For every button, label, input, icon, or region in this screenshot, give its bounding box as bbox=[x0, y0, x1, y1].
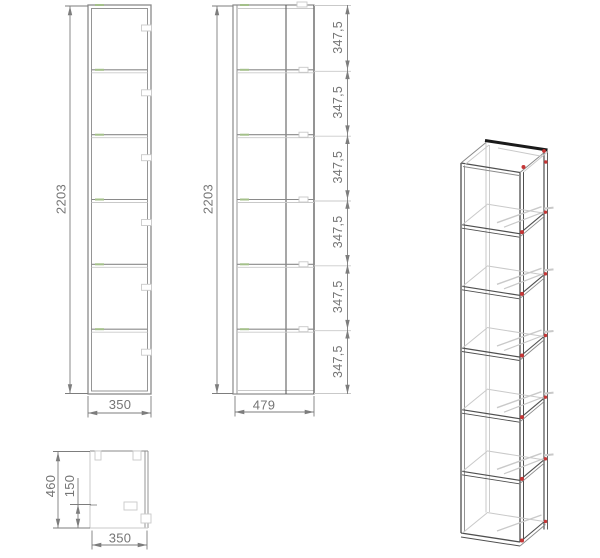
wall-bracket-tab bbox=[297, 2, 307, 7]
side-shelves bbox=[237, 4, 351, 394]
front-connector-tabs bbox=[142, 25, 152, 355]
dimension-arrow bbox=[235, 410, 244, 414]
top-bracket-tab-3 bbox=[141, 514, 151, 523]
shelf-height-dimension: 347,5 bbox=[331, 21, 345, 54]
dimension-arrow bbox=[88, 411, 97, 415]
connector-dot bbox=[520, 477, 524, 481]
connector-dot bbox=[544, 334, 547, 337]
top-wall-bracket bbox=[124, 502, 137, 510]
cam-connector bbox=[240, 4, 249, 6]
cam-connector bbox=[240, 328, 249, 330]
cam-connector bbox=[95, 263, 104, 265]
front-height-dimension: 2203 bbox=[54, 184, 69, 214]
connector-dot bbox=[520, 230, 524, 234]
iso-shelf-left bbox=[463, 390, 488, 410]
side-connector-tabs bbox=[297, 2, 308, 332]
cam-connector bbox=[240, 134, 249, 136]
cam-connector bbox=[95, 199, 104, 201]
dimensions: 2203 350 2203 479 347,5347,5347,5347,534… bbox=[43, 5, 350, 550]
connector-dot bbox=[544, 395, 547, 398]
iso-bracket-stub bbox=[544, 208, 554, 209]
dimension-arrow bbox=[215, 384, 219, 393]
dimension-lines bbox=[53, 5, 350, 550]
dimension-arrow bbox=[215, 6, 219, 15]
shelf-height-dimension: 347,5 bbox=[331, 216, 345, 249]
shelf-height-dimension: 347,5 bbox=[331, 86, 345, 119]
dimension-arrow bbox=[305, 410, 314, 414]
iso-frame-rails bbox=[461, 143, 548, 543]
drawing-canvas: 2203 350 2203 479 347,5347,5347,5347,534… bbox=[0, 0, 600, 558]
shelf-height-dimensions: 347,5347,5347,5347,5347,5347,5 bbox=[331, 21, 345, 378]
wall-bracket-tab bbox=[142, 349, 152, 355]
chain-arrow bbox=[345, 125, 349, 134]
dimension-arrow bbox=[76, 505, 80, 514]
wall-bracket-tab bbox=[299, 132, 308, 137]
iso-shelf-left bbox=[463, 266, 488, 286]
iso-shelf-left bbox=[463, 205, 488, 225]
wall-bracket-tab bbox=[299, 262, 308, 267]
dimension-arrow bbox=[138, 543, 147, 547]
wall-bracket-tab bbox=[142, 25, 152, 31]
front-width-dimension: 350 bbox=[109, 397, 132, 412]
iso-bottom-face bbox=[461, 513, 547, 547]
dimension-arrow bbox=[92, 543, 101, 547]
shelf-height-dimension: 347,5 bbox=[331, 345, 345, 378]
wall-bracket-tab bbox=[142, 90, 152, 96]
cam-connector bbox=[240, 69, 249, 71]
connector-dot bbox=[520, 292, 524, 296]
iso-shelf-left bbox=[463, 328, 488, 348]
top-width-dimension: 350 bbox=[109, 531, 132, 546]
iso-view bbox=[461, 141, 554, 547]
cam-connector bbox=[240, 199, 249, 201]
iso-bracket-stub bbox=[544, 454, 554, 455]
cam-connector bbox=[95, 328, 104, 330]
chain-arrow bbox=[345, 385, 349, 394]
cam-connector bbox=[95, 69, 104, 71]
top-offset-dimension: 150 bbox=[62, 475, 77, 498]
top-bracket-tab-1 bbox=[95, 451, 101, 460]
shelf-height-dimension: 347,5 bbox=[331, 280, 345, 313]
iso-shelf-left bbox=[463, 451, 488, 471]
cam-connector bbox=[95, 4, 104, 6]
iso-bracket-stub bbox=[544, 331, 554, 332]
iso-bracket-stub bbox=[544, 269, 554, 270]
top-depth-dimension: 460 bbox=[43, 475, 58, 498]
wall-bracket-tab bbox=[299, 197, 308, 202]
connector-dot bbox=[520, 354, 524, 358]
connector-dot bbox=[520, 415, 524, 419]
chain-arrow bbox=[345, 190, 349, 199]
top-view bbox=[90, 451, 151, 528]
iso-top-face bbox=[461, 141, 548, 176]
wall-bracket-tab bbox=[299, 67, 308, 72]
wall-bracket-tab bbox=[142, 284, 152, 290]
dimension-arrow bbox=[142, 411, 151, 415]
front-shelves bbox=[92, 4, 148, 332]
shelf-height-dimension: 347,5 bbox=[331, 151, 345, 184]
connector-dot bbox=[544, 210, 547, 213]
chain-arrow bbox=[345, 320, 349, 329]
side-height-dimension: 2203 bbox=[201, 184, 216, 214]
top-bracket-tab-2 bbox=[133, 451, 141, 460]
side-width-dimension: 479 bbox=[253, 398, 276, 413]
side-view bbox=[233, 2, 351, 394]
iso-shelves bbox=[462, 204, 554, 484]
cam-connector bbox=[240, 263, 249, 265]
dimension-arrow bbox=[56, 452, 60, 461]
cam-connector bbox=[95, 134, 104, 136]
dimension-arrow bbox=[76, 519, 80, 528]
chain-arrow bbox=[345, 5, 349, 14]
connector-dot bbox=[544, 457, 547, 460]
chain-arrow bbox=[345, 255, 349, 264]
wall-bracket-tab bbox=[299, 327, 308, 332]
dimension-arrow bbox=[56, 519, 60, 528]
wall-bracket-tab bbox=[142, 220, 152, 226]
chain-arrow bbox=[345, 61, 349, 70]
front-view bbox=[88, 4, 152, 394]
technical-drawing: 2203 350 2203 479 347,5347,5347,5347,534… bbox=[0, 0, 600, 558]
dimension-arrow bbox=[68, 6, 72, 15]
dimension-arrow bbox=[68, 384, 72, 393]
wall-bracket-tab bbox=[142, 155, 152, 161]
connector-dot bbox=[544, 272, 547, 275]
iso-bracket-stub bbox=[544, 393, 554, 394]
